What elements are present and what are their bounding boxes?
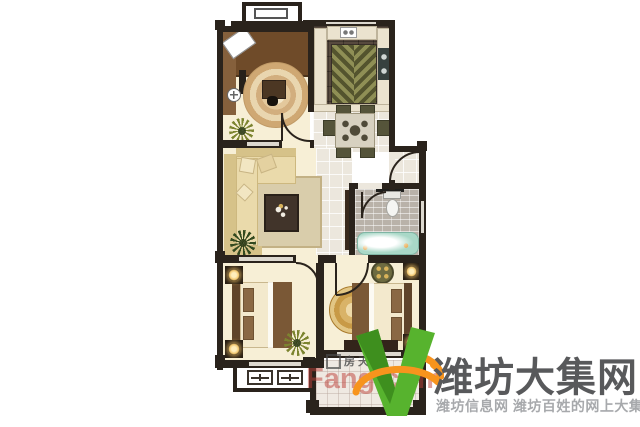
window-band	[246, 141, 280, 147]
wall-post	[303, 20, 314, 30]
kitchen-counter-left	[314, 28, 327, 106]
wall	[217, 26, 223, 370]
kitchen-chevron-rug	[331, 44, 377, 104]
window	[325, 21, 377, 25]
site-tagline: 潍坊信息网 潍坊百姓的网上大集	[436, 396, 640, 416]
bed-headboard	[232, 282, 240, 348]
fang-en-text: Fang.com	[306, 363, 443, 396]
door-opening	[336, 255, 368, 263]
plant-icon	[360, 332, 378, 350]
nightstand-lamp	[225, 340, 243, 358]
wall-post	[215, 251, 225, 263]
bed-pillow	[243, 288, 254, 312]
sofa-pillow	[239, 157, 256, 174]
wall	[217, 26, 314, 32]
nightstand-lamp	[403, 334, 420, 351]
wall	[310, 407, 426, 415]
balcony-grille	[247, 370, 273, 385]
toilet	[386, 199, 399, 217]
side-table	[227, 88, 241, 102]
wall	[349, 183, 355, 262]
kitchen-bar	[313, 104, 391, 112]
stove	[340, 27, 357, 38]
floorplan-image: 房天下 Fang.com 潍坊大集网 潍坊信息网 潍坊百姓的网上大集	[0, 0, 640, 427]
round-table	[371, 261, 394, 284]
fang-watermark: 房天下 Fang.com	[306, 350, 432, 408]
wall-post	[215, 355, 225, 368]
door-opening	[282, 140, 310, 148]
window-sill	[231, 21, 313, 26]
balcony-slider	[248, 361, 302, 367]
desk-chair	[267, 96, 278, 106]
closet-band	[238, 256, 294, 262]
wall-post	[417, 141, 427, 151]
plant-icon	[230, 230, 256, 256]
bathtub	[357, 232, 419, 255]
entry-door-opening	[389, 152, 395, 180]
window	[420, 200, 425, 234]
coffee-table	[264, 194, 299, 232]
toilet-tank	[383, 191, 401, 199]
nightstand-lamp	[225, 266, 243, 284]
wall	[389, 20, 395, 152]
balcony-grille	[277, 370, 303, 385]
bed-pillow	[391, 289, 402, 313]
balcony-top-window	[254, 8, 288, 19]
site-name: 潍坊大集网	[433, 345, 638, 403]
nightstand-lamp	[403, 263, 420, 280]
dining-table	[335, 113, 375, 148]
door-opening	[296, 255, 318, 263]
wall-post	[215, 20, 225, 30]
bed-pillow	[243, 316, 254, 340]
wall	[419, 146, 426, 358]
wall	[308, 20, 314, 112]
bath-door-opening	[358, 183, 382, 189]
bed-pillow	[391, 317, 402, 341]
